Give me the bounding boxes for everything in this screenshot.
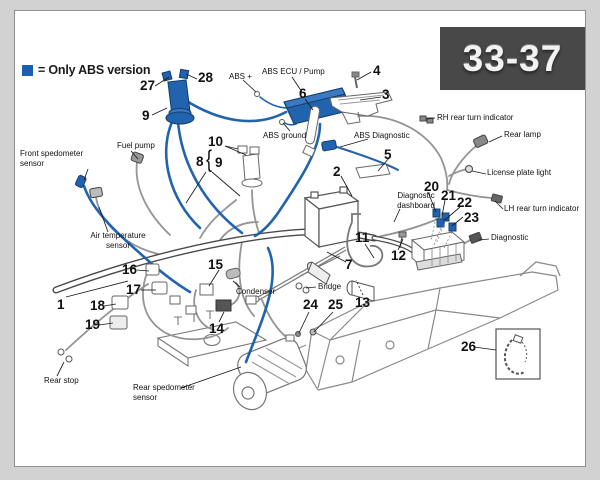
abs-legend-text: = Only ABS version bbox=[38, 63, 150, 77]
abs-legend: = Only ABS version bbox=[22, 63, 150, 77]
page-code: 33-37 bbox=[463, 38, 563, 80]
label-rear-lamp: Rear lamp bbox=[504, 130, 541, 140]
callout-24: 24 bbox=[303, 298, 318, 312]
callout-5: 5 bbox=[384, 148, 392, 162]
callout-7: 7 bbox=[345, 258, 353, 272]
callout-9-top: 9 bbox=[142, 109, 150, 123]
callout-8-bracket: { bbox=[206, 148, 212, 172]
callout-15: 15 bbox=[208, 258, 223, 272]
callout-13: 13 bbox=[355, 296, 370, 310]
label-rh-rear-turn-indicator: RH rear turn indicator bbox=[437, 113, 513, 123]
battery-drawing bbox=[305, 187, 358, 247]
callout-8: 8 bbox=[196, 155, 204, 169]
callout-14: 14 bbox=[209, 322, 224, 336]
callout-11: 11 bbox=[355, 231, 369, 245]
abs-diagnostic-plug bbox=[321, 140, 336, 151]
callout-19: 19 bbox=[85, 318, 100, 332]
callout-28: 28 bbox=[198, 71, 213, 85]
label-rear-speedo-sensor: Rear spedometer sensor bbox=[133, 383, 195, 402]
callout-20: 20 bbox=[424, 180, 439, 194]
callout-23: 23 bbox=[464, 211, 479, 225]
callout-2: 2 bbox=[333, 165, 341, 179]
label-air-temp-sensor: Air temperature sensor bbox=[88, 231, 148, 250]
clamp-box-drawing bbox=[496, 329, 540, 379]
label-rear-stop: Rear stop bbox=[44, 376, 79, 386]
label-condenser: Condenser bbox=[236, 287, 275, 297]
label-abs-diagnostic: ABS Diagnostic bbox=[354, 131, 410, 141]
callout-18: 18 bbox=[90, 299, 105, 313]
callout-16: 16 bbox=[122, 263, 137, 277]
ignition-switch-drawing bbox=[162, 69, 194, 124]
label-abs-ground: ABS ground bbox=[263, 131, 306, 141]
label-abs-plus: ABS + bbox=[229, 72, 252, 82]
callout-22: 22 bbox=[457, 196, 472, 210]
page-code-box: 33-37 bbox=[440, 27, 585, 90]
callout-1: 1 bbox=[57, 298, 65, 312]
sticker-item5 bbox=[356, 164, 390, 178]
label-abs-ecu-pump: ABS ECU / Pump bbox=[262, 67, 325, 77]
label-diagnostic: Diagnostic bbox=[491, 233, 528, 243]
fuel-sender-drawing bbox=[238, 146, 262, 187]
callout-26: 26 bbox=[461, 340, 476, 354]
label-license-plate-light: License plate light bbox=[487, 168, 551, 178]
abs-legend-swatch-icon bbox=[22, 65, 33, 76]
starter-motor-drawing bbox=[228, 335, 310, 415]
callout-17: 17 bbox=[126, 283, 141, 297]
label-bridge: Bridge bbox=[318, 282, 341, 292]
callout-25: 25 bbox=[328, 298, 343, 312]
callout-21: 21 bbox=[441, 189, 456, 203]
callout-9: 9 bbox=[215, 156, 223, 170]
callout-4: 4 bbox=[373, 64, 381, 78]
callout-10: 10 bbox=[208, 135, 223, 149]
label-lh-rear-turn-indicator: LH rear turn indicator bbox=[504, 204, 579, 214]
label-fuel-pump: Fuel pump bbox=[117, 141, 155, 151]
callout-12: 12 bbox=[391, 249, 406, 263]
label-front-speedo-sensor: Front spedometer sensor bbox=[20, 149, 83, 168]
callout-27: 27 bbox=[140, 79, 155, 93]
callout-6: 6 bbox=[299, 87, 307, 101]
callout-3: 3 bbox=[382, 88, 390, 102]
